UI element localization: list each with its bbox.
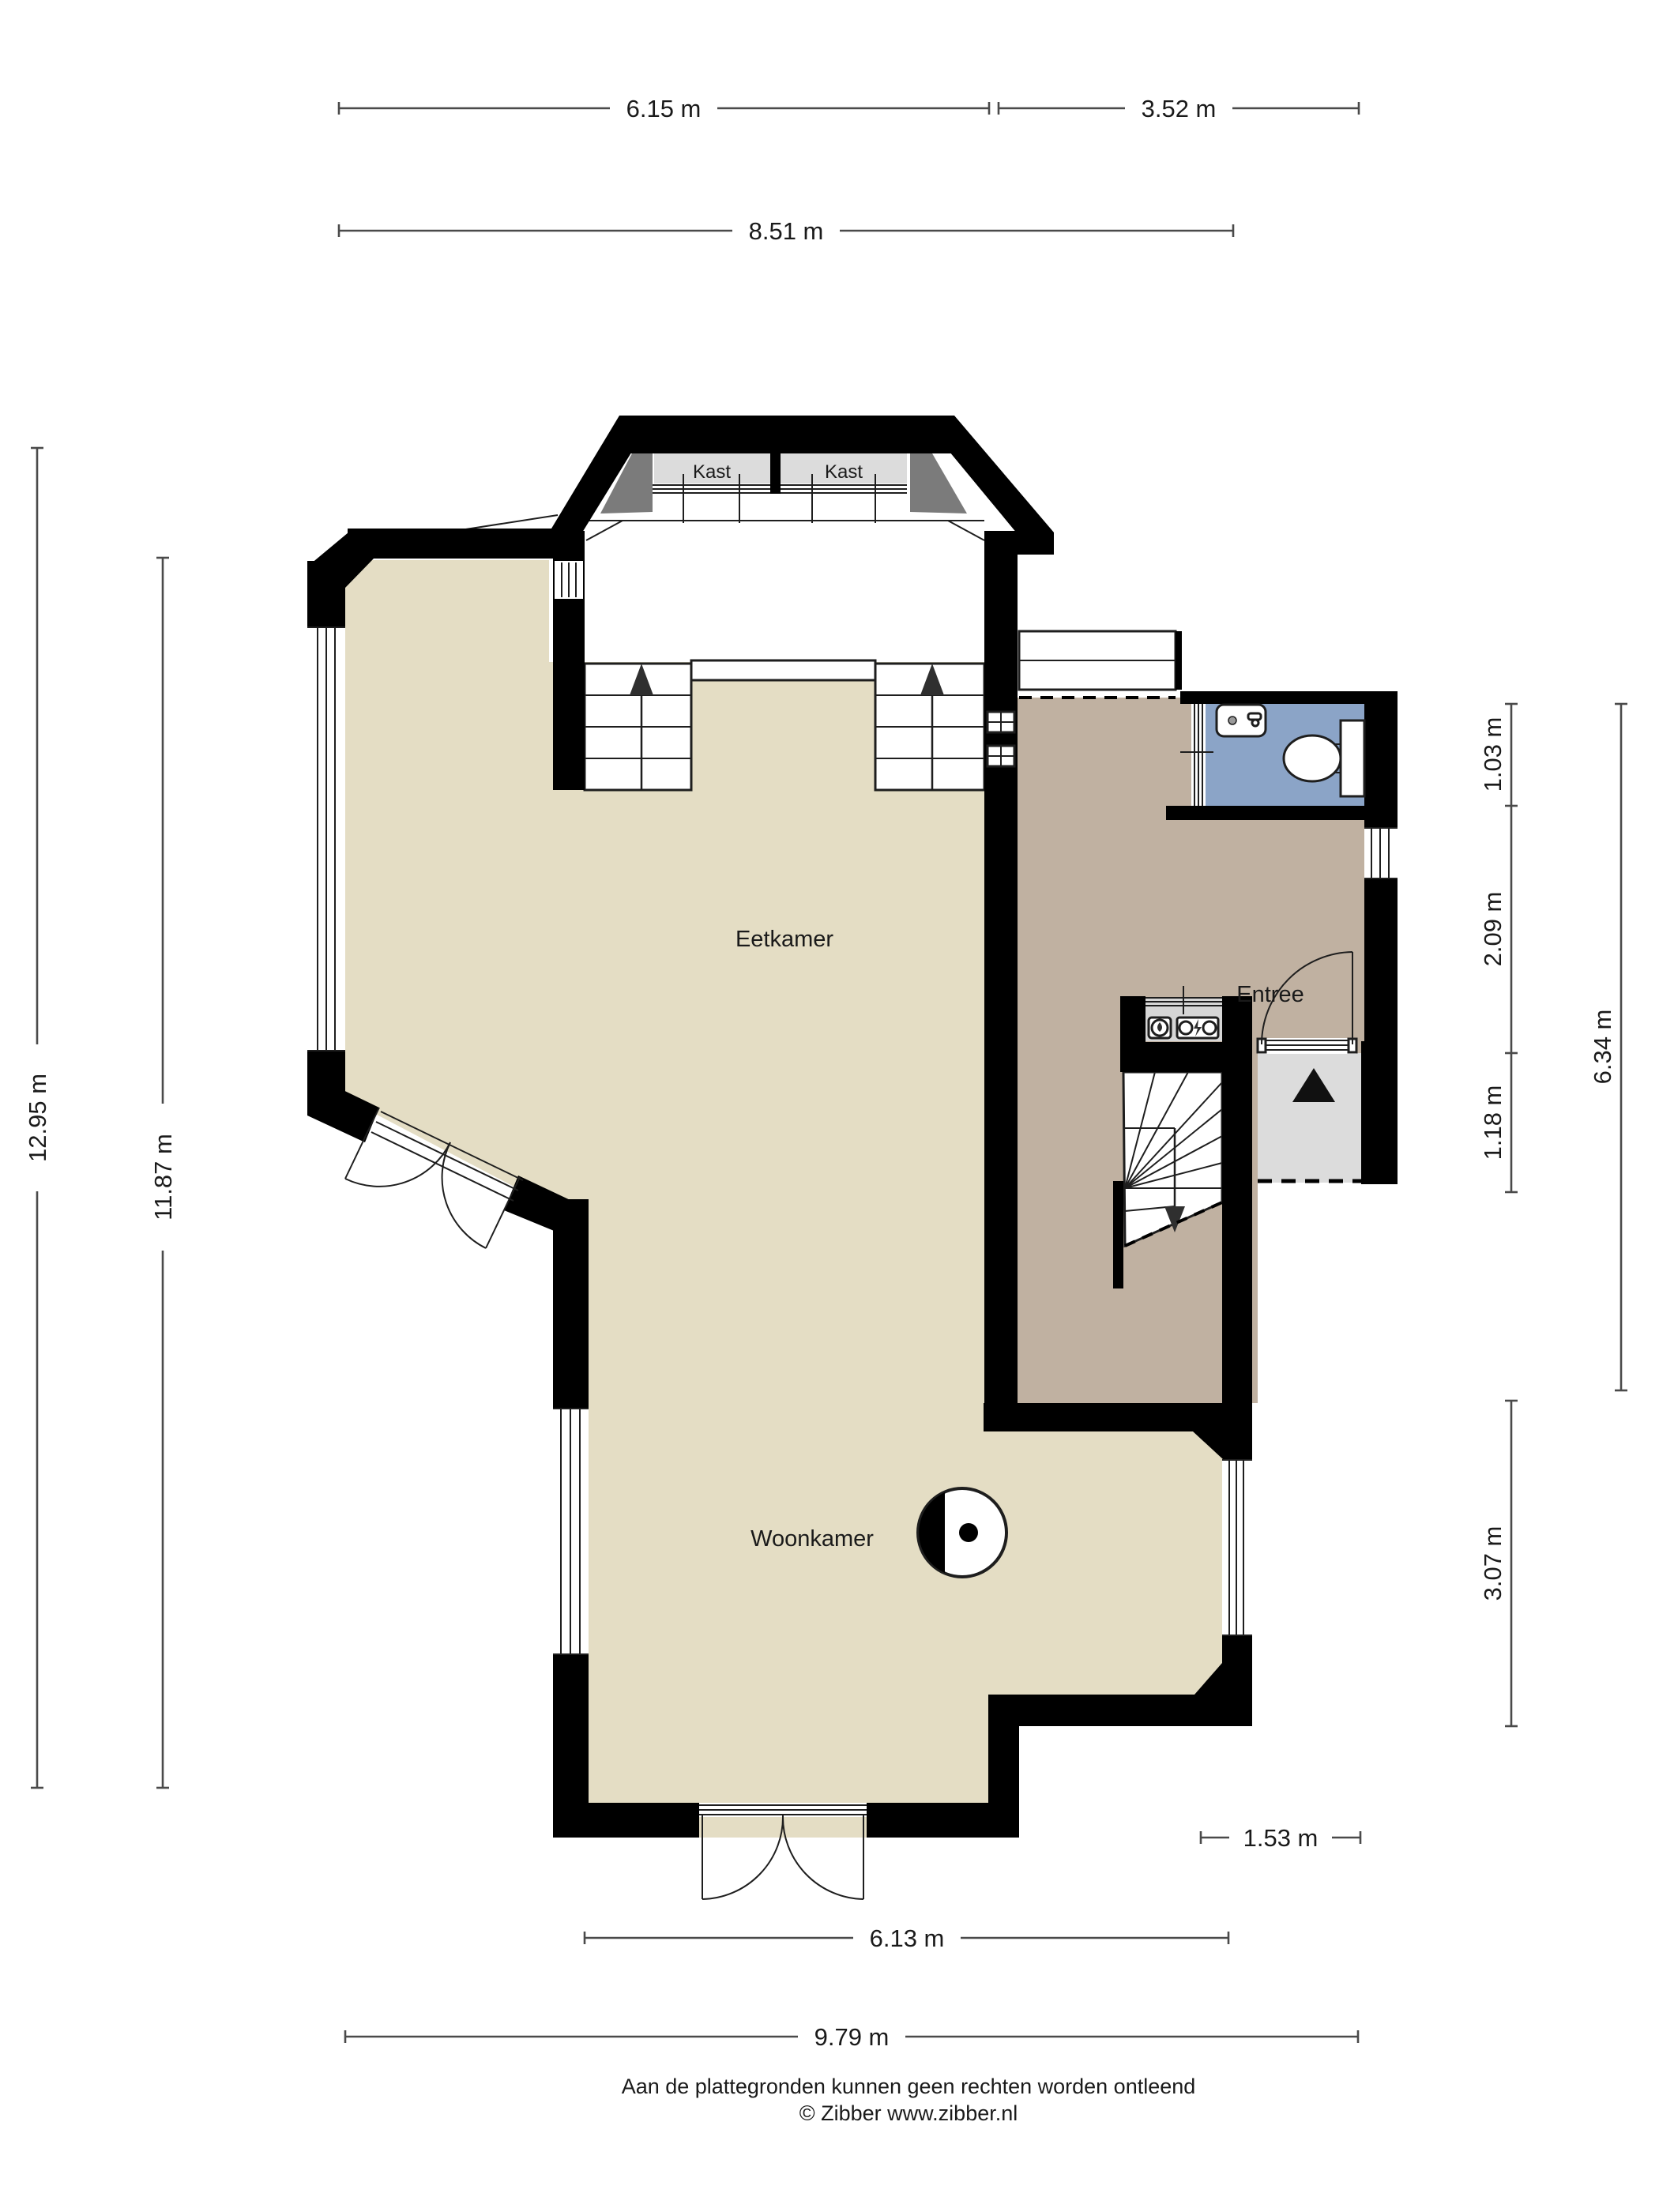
dim-left-inner: 11.87 m <box>146 558 179 1788</box>
floor-plan: Kast Kast Eetkamer Woonkamer Entree 6.15… <box>0 0 1659 2212</box>
platform-step <box>691 660 875 680</box>
svg-text:6.13 m: 6.13 m <box>870 1924 945 1952</box>
dim-top-total: 8.51 m <box>339 213 1233 246</box>
footer-disclaimer: Aan de plattegronden kunnen geen rechten… <box>622 2075 1196 2098</box>
svg-text:1.53 m: 1.53 m <box>1243 1824 1319 1852</box>
dim-right-hall: 2.09 m <box>1479 806 1518 1053</box>
window-eetkamer-left <box>307 627 345 1051</box>
dim-top-right: 3.52 m <box>999 91 1359 124</box>
fireplace <box>918 1488 1006 1577</box>
label-entree: Entree <box>1236 982 1303 1007</box>
svg-text:9.79 m: 9.79 m <box>814 2023 890 2051</box>
page: Kast Kast Eetkamer Woonkamer Entree 6.15… <box>0 0 1659 2212</box>
svg-text:12.95 m: 12.95 m <box>24 1074 51 1162</box>
svg-text:3.07 m: 3.07 m <box>1479 1526 1507 1601</box>
svg-text:6.15 m: 6.15 m <box>626 95 702 122</box>
svg-text:8.51 m: 8.51 m <box>749 217 824 245</box>
svg-text:1.18 m: 1.18 m <box>1479 1085 1507 1161</box>
window-woonkamer-right <box>1222 1460 1252 1635</box>
dim-right-livingroom: 3.07 m <box>1479 1401 1518 1726</box>
entrance-porch <box>1258 1053 1361 1183</box>
svg-text:11.87 m: 11.87 m <box>149 1134 177 1221</box>
dim-bottom-step: 1.53 m <box>1201 1820 1360 1853</box>
stairs-up-left <box>585 664 691 790</box>
dim-left-outer: 12.95 m <box>21 448 54 1788</box>
svg-text:3.52 m: 3.52 m <box>1142 95 1217 122</box>
svg-text:1.03 m: 1.03 m <box>1479 717 1507 792</box>
window-platform-left <box>555 561 583 599</box>
svg-text:6.34 m: 6.34 m <box>1589 1010 1616 1085</box>
dim-top-left: 6.15 m <box>339 91 989 124</box>
dim-right-total: 6.34 m <box>1589 704 1627 1390</box>
label-kast-right: Kast <box>825 461 863 483</box>
window-woonkamer-left <box>553 1409 589 1654</box>
label-eetkamer: Eetkamer <box>735 927 833 952</box>
footer: Aan de plattegronden kunnen geen rechten… <box>622 2075 1196 2125</box>
label-woonkamer: Woonkamer <box>750 1526 874 1552</box>
boiler-icon <box>1149 1018 1171 1038</box>
svg-text:2.09 m: 2.09 m <box>1479 892 1507 967</box>
window-hall-right <box>1364 828 1398 878</box>
dim-right-toilet: 1.03 m <box>1479 704 1518 806</box>
dim-bottom-inner: 6.13 m <box>585 1920 1228 1954</box>
dim-bottom-total: 9.79 m <box>345 2019 1358 2052</box>
stairs-up-right <box>875 664 984 790</box>
sink <box>1217 705 1266 736</box>
exterior-cabinet-strip <box>1019 631 1182 698</box>
electric-meter-icon <box>1177 1018 1218 1038</box>
footer-copyright: © Zibber www.zibber.nl <box>799 2101 1018 2125</box>
dim-right-porch: 1.18 m <box>1479 1053 1518 1192</box>
label-kast-left: Kast <box>693 461 731 483</box>
